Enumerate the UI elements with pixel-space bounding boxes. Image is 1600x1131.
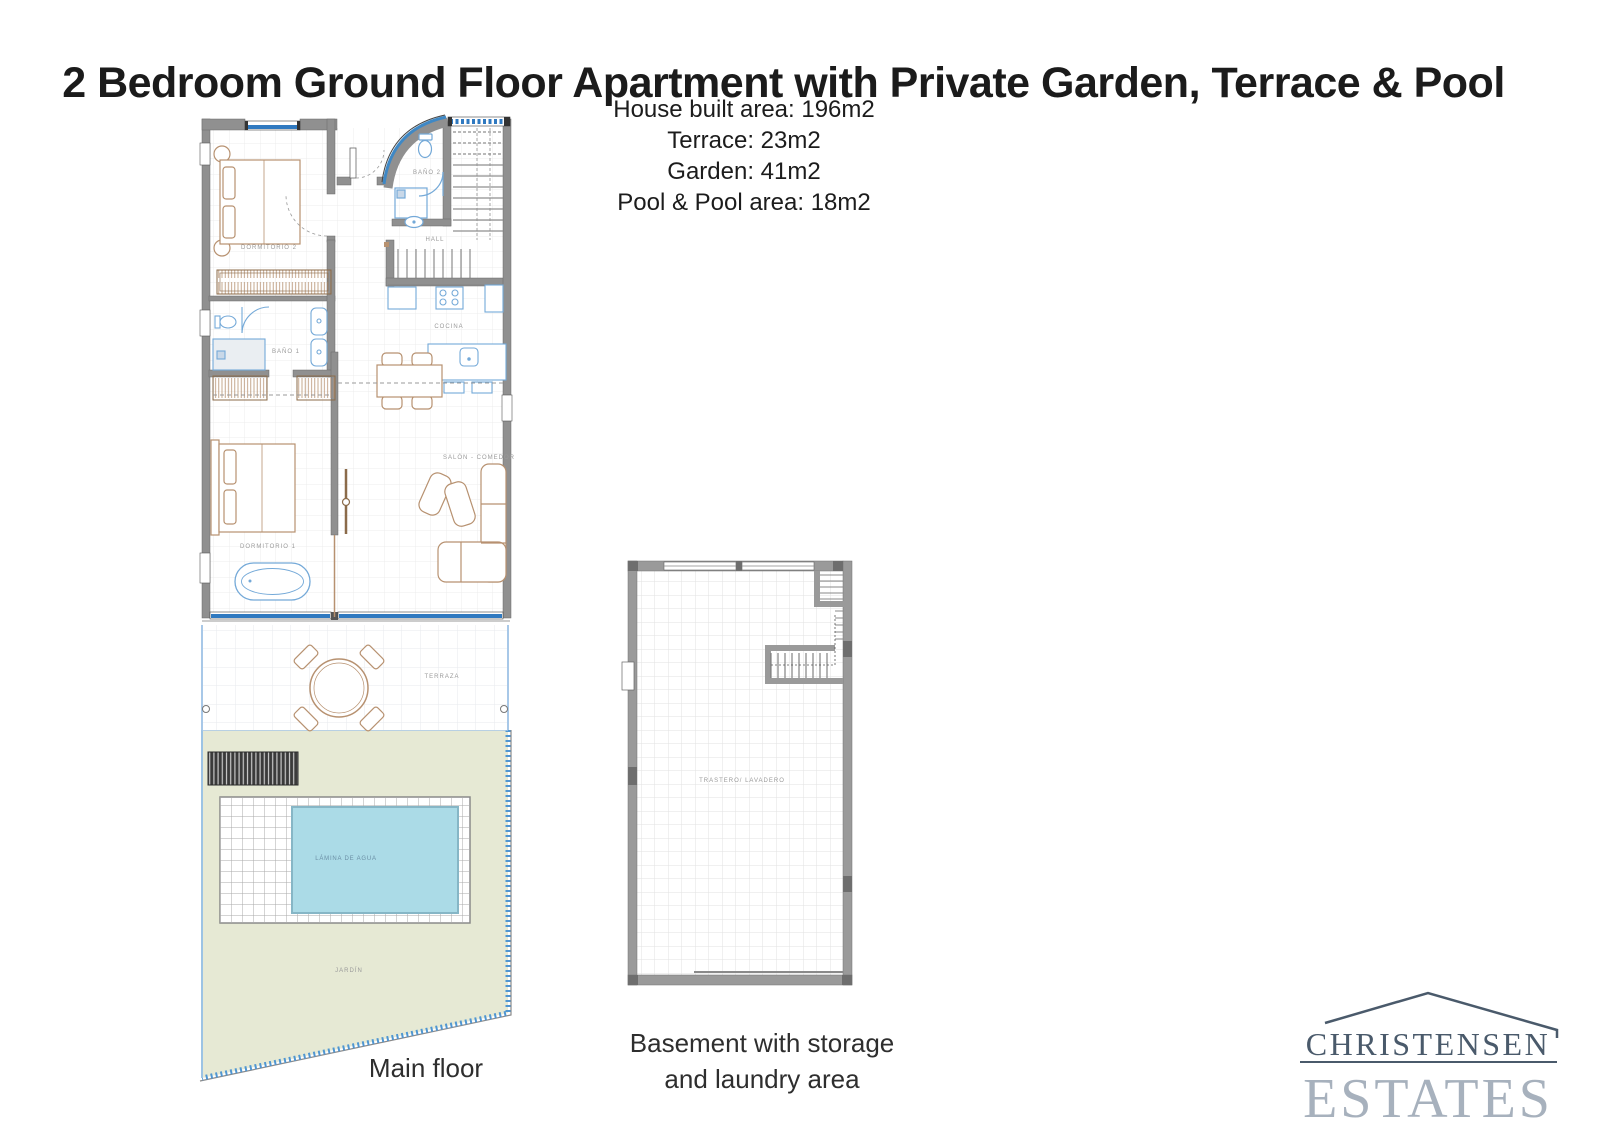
- stool: [472, 382, 492, 393]
- area-line-garden: Garden: 41m2: [613, 156, 875, 187]
- main-floor-plan: LÁMINA DE AGUA JARDÍN TERRAZA: [198, 112, 516, 1087]
- swimming-pool: LÁMINA DE AGUA: [292, 807, 458, 913]
- headboard: [211, 440, 219, 535]
- bathroom2-label: BAÑO 2: [413, 169, 441, 176]
- counter-right: [485, 285, 503, 312]
- basement-door: [622, 662, 634, 690]
- kitchen-label: COCINA: [434, 324, 463, 330]
- toilet2-tank: [419, 134, 432, 140]
- bathroom1-label: BAÑO 1: [272, 348, 300, 355]
- bedroom2: [214, 146, 300, 256]
- dining-table: [377, 365, 442, 397]
- island-sink: [460, 348, 478, 366]
- living-room-label: SALÓN - COMEDOR: [443, 454, 515, 461]
- basement-caption-line1: Basement with storage: [630, 1025, 894, 1061]
- stair-post: [384, 242, 389, 247]
- sofa-seat: [438, 542, 506, 582]
- area-line-pool: Pool & Pool area: 18m2: [613, 187, 875, 218]
- bedroom2-label: DORMITORIO 2: [241, 245, 297, 251]
- toilet2-icon: [419, 141, 432, 158]
- area-info: House built area: 196m2 Terrace: 23m2 Ga…: [613, 94, 875, 218]
- pergola-deck: [208, 752, 298, 785]
- basement-caption: Basement with storage and laundry area: [630, 1025, 894, 1097]
- bedroom1: [211, 440, 295, 535]
- counter-left: [388, 287, 416, 309]
- area-line-house: House built area: 196m2: [613, 94, 875, 125]
- garden-area: LÁMINA DE AGUA JARDÍN: [200, 730, 511, 1081]
- basement-room-label: TRASTERO/ LAVADERO: [699, 778, 785, 784]
- main-floor-caption: Main floor: [369, 1053, 483, 1084]
- terrace-area: TERRAZA: [202, 625, 508, 732]
- bedroom1-label: DORMITORIO 1: [240, 544, 296, 550]
- logo-name: CHRISTENSEN: [1306, 1026, 1550, 1062]
- drain-right: [501, 706, 508, 713]
- garden-label: JARDÍN: [335, 967, 363, 974]
- entry-door: [350, 148, 356, 178]
- pool-label: LÁMINA DE AGUA: [315, 855, 377, 862]
- area-line-terrace: Terrace: 23m2: [613, 125, 875, 156]
- bathtub: [235, 563, 310, 600]
- logo-subname: ESTATES: [1303, 1068, 1553, 1130]
- basement-caption-line2: and laundry area: [630, 1061, 894, 1097]
- hob-icon: [436, 287, 463, 309]
- flyer-page: 2 Bedroom Ground Floor Apartment with Pr…: [0, 0, 1600, 1131]
- basement-plan: TRASTERO/ LAVADERO: [614, 541, 856, 993]
- stool: [444, 382, 464, 393]
- terrace-label: TERRAZA: [424, 674, 459, 680]
- christensen-estates-logo: CHRISTENSEN ESTATES: [1280, 980, 1580, 1130]
- toilet1-icon: [220, 316, 236, 328]
- drain-left: [203, 706, 210, 713]
- sink1-icon: [311, 308, 327, 335]
- hall-label: HALL: [425, 237, 444, 243]
- toilet1-tank: [215, 316, 220, 328]
- sink1-icon: [311, 339, 327, 366]
